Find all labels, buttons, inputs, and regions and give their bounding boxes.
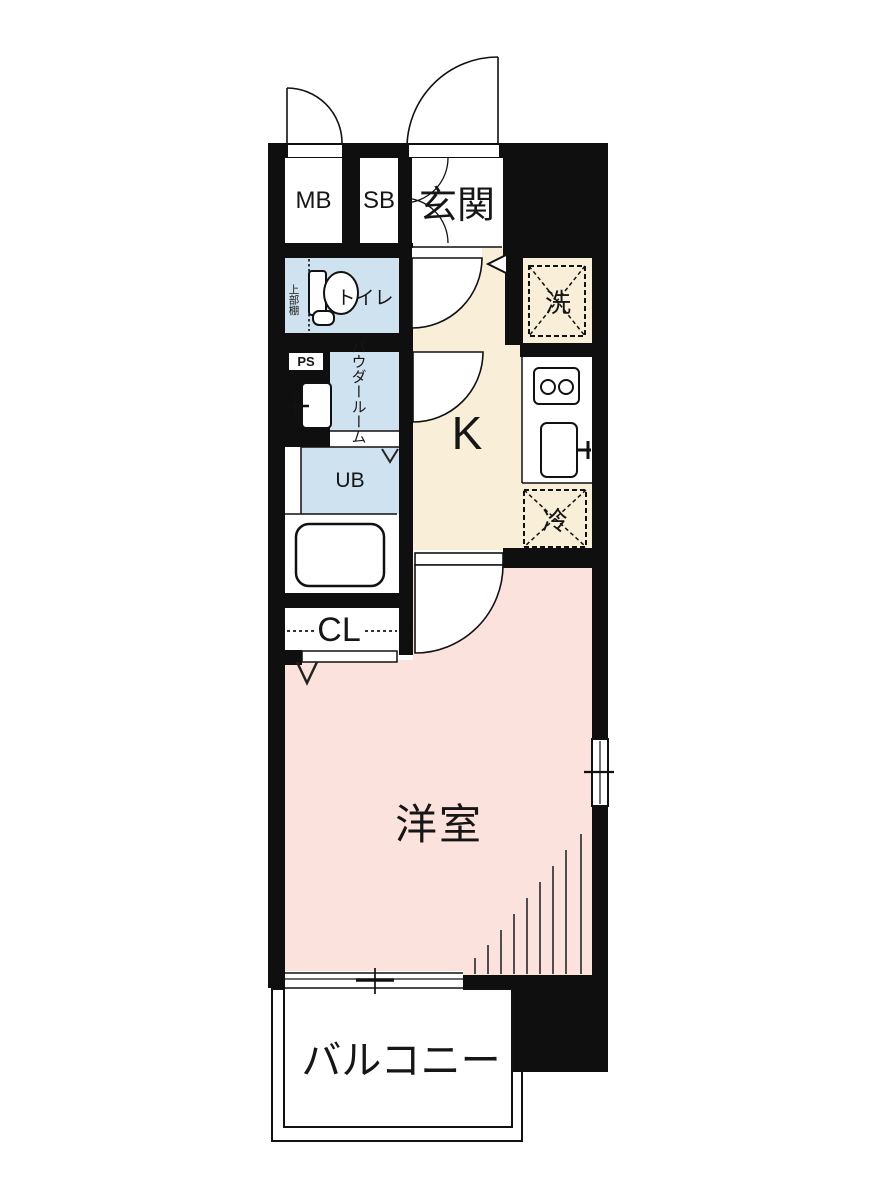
meter-box-label: MB (285, 188, 342, 214)
entry-arrow-icon (488, 255, 506, 273)
closet-door-chevron-icon (297, 662, 317, 683)
upper-shelf-label: 上部棚 (287, 272, 301, 328)
entrance-step-line (412, 247, 502, 258)
toilet-door-swing-icon (412, 258, 482, 328)
balcony-label: バルコニー (296, 1034, 506, 1080)
washer-label: 洗 (542, 286, 574, 316)
corner-hatch-lines (475, 834, 581, 974)
unit-bath-door-chevron-icon (382, 449, 398, 462)
powder-room-label-col1: パウダー (348, 339, 369, 399)
unit-bath-label: UB (327, 468, 373, 494)
floor-plan: MB SB 玄関 トイレ 上部棚 洗 PS パウダー ルーム K UB 冷 CL… (0, 0, 880, 1200)
closet-label: CL (314, 610, 364, 650)
powder-room-label: パウダー ルーム (336, 352, 380, 430)
entrance-label: 玄関 (409, 179, 505, 223)
entrance-door-swing-icon (407, 57, 499, 157)
right-window-icon (584, 739, 614, 806)
stove-icon (534, 368, 579, 404)
closet-opening (302, 651, 397, 662)
powder-room-label-col2: ルーム (348, 399, 369, 444)
western-room-label: 洋室 (391, 798, 487, 844)
pipe-space-label: PS (287, 351, 325, 372)
meter-box-door-swing-icon (287, 88, 342, 157)
bottom-window-icon (285, 968, 463, 994)
shoe-box-label: SB (360, 188, 398, 214)
western-room-door-swing-icon (415, 553, 503, 653)
washbasin-icon (288, 383, 331, 428)
refrigerator-label: 冷 (539, 503, 571, 535)
toilet-label: トイレ (333, 285, 397, 307)
kitchen-sink-icon (541, 423, 591, 477)
kitchen-label: K (443, 407, 491, 459)
bathtub-icon (296, 524, 384, 586)
